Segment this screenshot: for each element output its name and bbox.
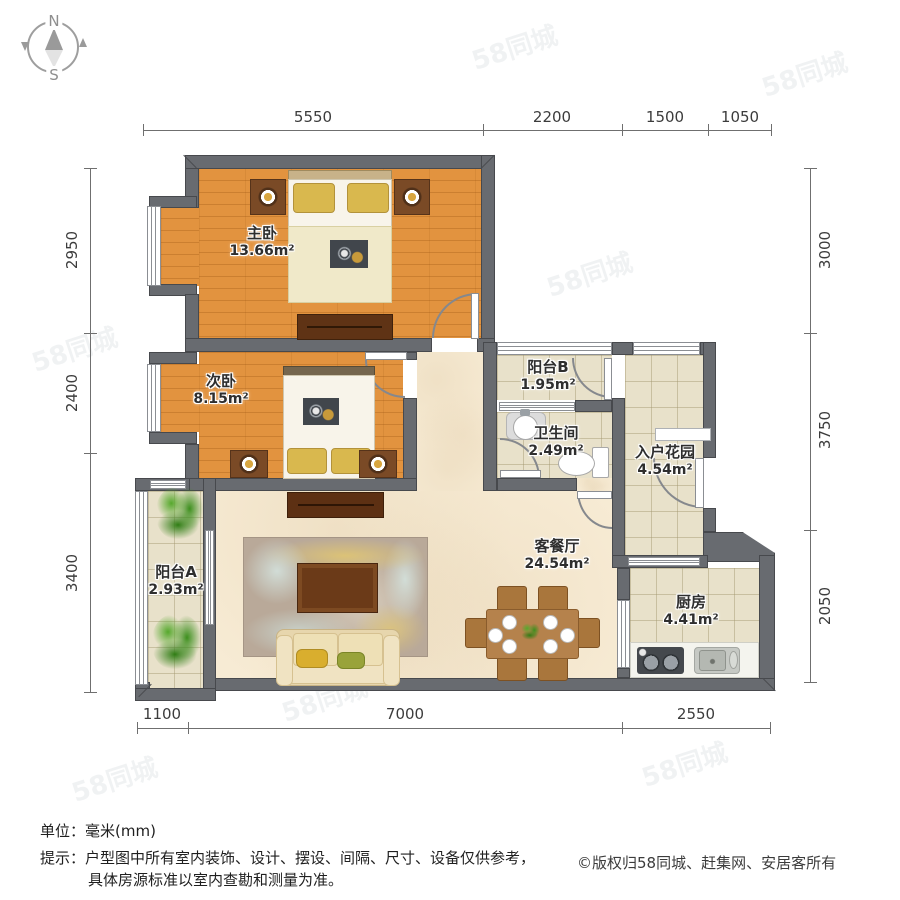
- wall: [149, 432, 197, 444]
- dim-right-2: 3750: [816, 411, 834, 449]
- second-pillow-left: [287, 448, 327, 474]
- master-dresser: [297, 314, 393, 340]
- door-leaf-balcony-b: [604, 358, 612, 400]
- copyright: ©版权归58同城、赶集网、安居客所有: [577, 852, 836, 873]
- door-leaf-bathroom: [500, 470, 541, 478]
- floor-master-bay: [161, 206, 199, 286]
- dim-left-2: 2400: [63, 374, 81, 412]
- wall: [612, 398, 625, 568]
- wall: [575, 400, 612, 412]
- second-nightstand-right: [359, 450, 397, 478]
- sofa-pillow-green: [337, 652, 365, 669]
- dim-right-1: 3000: [816, 231, 834, 269]
- door-leaf-second-bedroom: [365, 352, 407, 360]
- sofa-arm-left: [276, 635, 293, 686]
- master-pillow-right: [347, 183, 389, 213]
- plate: [502, 615, 517, 630]
- plate: [488, 628, 503, 643]
- window-kitchen-door: [617, 600, 630, 668]
- window-second-bay: [147, 364, 161, 432]
- room-label-bathroom: 卫生间 2.49m²: [528, 424, 583, 460]
- tip-line1: 提示：户型图中所有室内装饰、设计、摆设、间隔、尺寸、设备仅供参考，: [40, 847, 535, 868]
- plate: [543, 615, 558, 630]
- window-balcony-a-left: [135, 491, 148, 685]
- window-balcony-b-bath: [499, 402, 575, 411]
- master-pillow-left: [293, 183, 335, 213]
- wall: [135, 688, 216, 701]
- floor-hallway: [417, 352, 483, 491]
- watermark: 58同城: [66, 747, 161, 809]
- dim-bottom-3: 2550: [677, 705, 715, 723]
- room-name-kitchen: 厨房: [663, 593, 718, 611]
- dim-tick: [84, 168, 97, 169]
- dim-top-3: 1500: [646, 108, 684, 126]
- door-leaf-living-entry: [577, 491, 612, 499]
- compass: N S: [22, 12, 86, 84]
- floorplan-canvas: 58同城 58同城 58同城 58同城 58同城 58同城 58同城 58同城 …: [0, 0, 900, 900]
- wall: [185, 338, 432, 352]
- tip-line2: 具体房源标准以室内查勘和测量为准。: [88, 869, 343, 890]
- watermark: 58同城: [466, 15, 561, 77]
- master-nightstand-left: [250, 179, 286, 215]
- second-blanket-pattern: [303, 398, 339, 425]
- room-area-kitchen: 4.41m²: [663, 611, 718, 629]
- dim-tick: [804, 168, 817, 169]
- dim-tick: [708, 124, 709, 136]
- dim-right-3: 2050: [816, 587, 834, 625]
- room-name-master: 主卧: [229, 224, 294, 242]
- watermark: 58同城: [756, 42, 851, 104]
- room-name-balcony-a: 阳台A: [148, 563, 203, 581]
- balcony-plant-bottom: [152, 614, 202, 670]
- compass-arrow-left-icon: [21, 42, 29, 51]
- wall: [185, 478, 417, 491]
- dim-line-right: [810, 168, 811, 683]
- dim-bottom-1: 1100: [143, 705, 181, 723]
- room-label-balcony-a: 阳台A 2.93m²: [148, 563, 203, 599]
- room-area-balcony-a: 2.93m²: [148, 581, 203, 599]
- dim-line-bottom: [137, 728, 771, 729]
- window-balcony-a-living: [205, 530, 214, 625]
- wall: [617, 568, 630, 600]
- room-label-garden: 入户花园 4.54m²: [635, 443, 695, 479]
- window-master-bay: [147, 206, 161, 286]
- wall: [497, 478, 577, 491]
- dim-tick: [137, 722, 138, 734]
- dim-tick: [143, 124, 144, 136]
- dim-tick: [804, 333, 817, 334]
- dim-tick: [483, 124, 484, 136]
- room-area-balcony-b: 1.95m²: [520, 376, 575, 394]
- dim-tick: [84, 692, 97, 693]
- coffee-table: [297, 563, 378, 613]
- room-name-balcony-b: 阳台B: [520, 358, 575, 376]
- master-nightstand-right: [394, 179, 430, 215]
- dim-tick: [804, 682, 817, 683]
- dining-plant: [521, 623, 540, 640]
- room-label-second: 次卧 8.15m²: [193, 372, 248, 408]
- plate: [543, 639, 558, 654]
- dim-tick: [804, 530, 817, 531]
- compass-arrow-right-icon: [79, 38, 87, 47]
- dim-tick: [84, 453, 97, 454]
- floor-doorway-strip: [577, 478, 612, 491]
- unit-label: 单位：毫米(mm): [40, 820, 156, 841]
- room-label-master: 主卧 13.66m²: [229, 224, 294, 260]
- wall: [759, 555, 775, 691]
- dim-tick: [188, 722, 189, 734]
- master-blanket-pattern: [330, 240, 368, 268]
- room-area-garden: 4.54m²: [635, 461, 695, 479]
- wall: [149, 352, 197, 364]
- room-name-second: 次卧: [193, 372, 248, 390]
- compass-north-label: N: [45, 12, 62, 30]
- stove: [637, 647, 684, 674]
- wall: [703, 508, 716, 532]
- dim-tick: [771, 124, 772, 136]
- balcony-plant-top: [156, 486, 204, 540]
- kitchen-faucet: [729, 651, 738, 669]
- room-label-balcony-b: 阳台B 1.95m²: [520, 358, 575, 394]
- kitchen-sink-basin: [699, 650, 726, 671]
- window-kitchen-top: [628, 557, 700, 566]
- dim-tick: [770, 722, 771, 734]
- dim-left-1: 2950: [63, 231, 81, 269]
- room-label-living: 客餐厅 24.54m²: [524, 537, 589, 573]
- room-name-garden: 入户花园: [635, 443, 695, 461]
- room-area-living: 24.54m²: [524, 555, 589, 573]
- dim-top-1: 5550: [294, 108, 332, 126]
- wall: [612, 342, 633, 355]
- room-label-kitchen: 厨房 4.41m²: [663, 593, 718, 629]
- compass-south-label: S: [46, 66, 62, 84]
- dim-tick: [84, 333, 97, 334]
- door-leaf-master: [471, 293, 479, 339]
- plate: [560, 628, 575, 643]
- room-name-bathroom: 卫生间: [528, 424, 583, 442]
- dim-bottom-2: 7000: [386, 705, 424, 723]
- wall: [185, 155, 495, 169]
- watermark: 58同城: [636, 732, 731, 794]
- tv-cabinet: [287, 492, 384, 518]
- garden-shoe-cabinet: [655, 428, 711, 441]
- compass-needle-north: [45, 28, 63, 50]
- room-area-master: 13.66m²: [229, 242, 294, 260]
- watermark: 58同城: [26, 317, 121, 379]
- plate: [502, 639, 517, 654]
- dim-line-top: [143, 130, 772, 131]
- dim-tick: [622, 722, 623, 734]
- door-leaf-entrance: [695, 458, 704, 508]
- window-balcony-b-top: [497, 342, 612, 355]
- watermark: 58同城: [541, 242, 636, 304]
- window-garden-top: [633, 342, 700, 355]
- dim-top-2: 2200: [533, 108, 571, 126]
- wall: [617, 668, 630, 678]
- second-nightstand-left: [230, 450, 268, 478]
- room-name-living: 客餐厅: [524, 537, 589, 555]
- room-area-bathroom: 2.49m²: [528, 442, 583, 460]
- room-area-second: 8.15m²: [193, 390, 248, 408]
- wall: [483, 342, 497, 491]
- sofa-pillow-yellow: [296, 649, 328, 668]
- sofa-arm-right: [383, 635, 400, 686]
- bathroom-faucet: [520, 409, 530, 416]
- wall: [481, 155, 495, 352]
- dim-tick: [622, 124, 623, 136]
- dim-left-3: 3400: [63, 554, 81, 592]
- dim-line-left: [90, 168, 91, 693]
- dim-top-4: 1050: [721, 108, 759, 126]
